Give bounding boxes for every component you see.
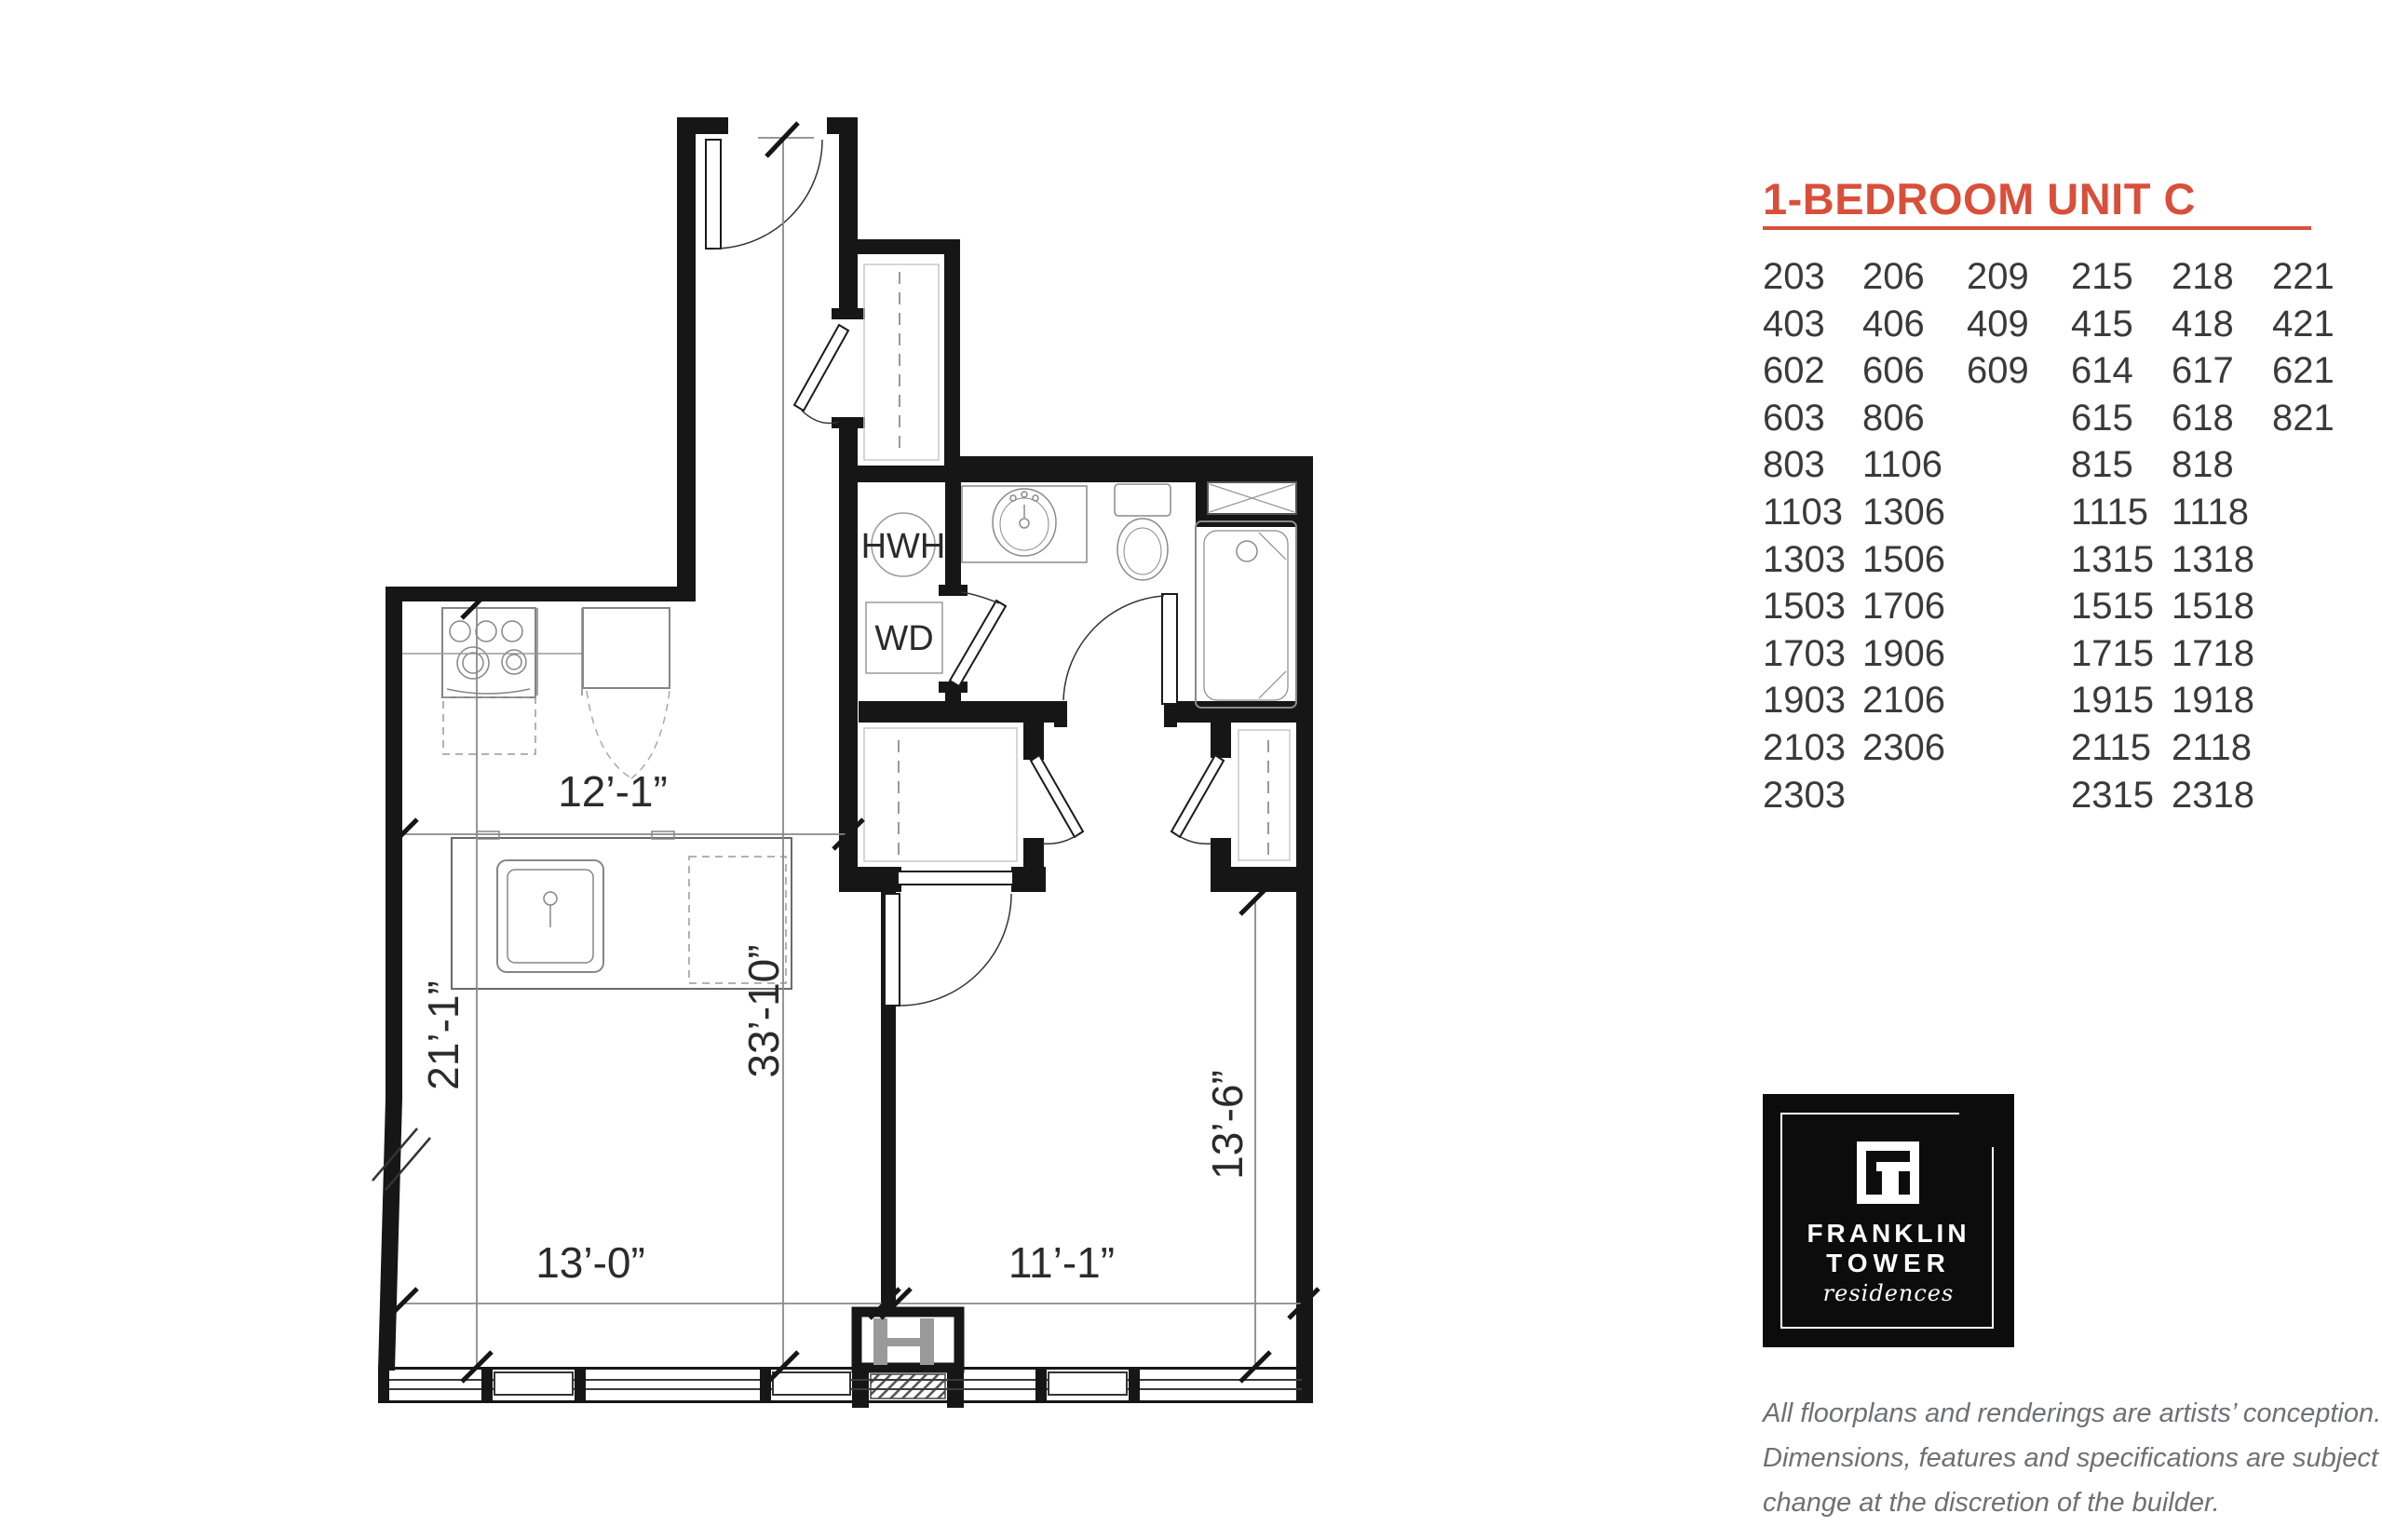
unit-number [1862,772,1967,819]
unit-number: 603 [1763,395,1862,442]
unit-number [1967,536,2071,584]
unit-number: 1503 [1763,583,1862,630]
unit-grid: 2032062092152182214034064094154184216026… [1763,253,2365,818]
unit-number: 403 [1763,301,1862,348]
dim-bedroom-width: 11’-1” [1008,1238,1115,1287]
dim-living-width: 13’-0” [535,1238,645,1287]
unit-number [2272,489,2365,536]
logo-tower: TOWER [1763,1249,2014,1278]
unit-number: 606 [1862,347,1967,395]
unit-number [1967,724,2071,772]
unit-number: 203 [1763,253,1862,301]
unit-number: 2318 [2172,772,2272,819]
column-detail [852,1312,964,1408]
unit-number: 215 [2071,253,2172,301]
dim-kitchen-width: 12’-1” [558,767,668,816]
unit-number: 617 [2172,347,2272,395]
unit-number [1967,677,2071,724]
logo-residences: residences [1763,1280,2014,1306]
unit-number: 1103 [1763,489,1862,536]
utility-door-leaf [950,601,1006,686]
unit-number: 1106 [1862,441,1967,489]
walls [378,117,1313,1402]
unit-number: 1903 [1763,677,1862,724]
unit-number [2272,583,2365,630]
unit-number: 1518 [2172,583,2272,630]
disclaimer-line: Dimensions, features and specifications … [1763,1436,2382,1480]
unit-number: 1703 [1763,630,1862,678]
unit-number [2272,724,2365,772]
unit-number [1967,772,2071,819]
label-wd: WD [874,619,933,658]
unit-number: 1115 [2071,489,2172,536]
unit-number [2272,772,2365,819]
unit-number: 1718 [2172,630,2272,678]
entry-closet-door-leaf [794,325,848,411]
sink [993,489,1056,556]
unit-number: 614 [2071,347,2172,395]
unit-number: 818 [2172,441,2272,489]
unit-number: 1315 [2071,536,2172,584]
disclaimer-line: change at the discretion of the builder. [1763,1480,2382,1525]
unit-number: 1918 [2172,677,2272,724]
floorplan-sheet: 12’-1” 13’-0” 11’-1” 21’-1” 33’-10” 13’-… [0,0,2382,1540]
unit-number: 806 [1862,395,1967,442]
dim-bedroom-depth: 13’-6” [1203,1070,1252,1180]
unit-number [2272,441,2365,489]
unit-number: 1515 [2071,583,2172,630]
unit-number: 1906 [1862,630,1967,678]
logo-franklin: FRANKLIN [1763,1219,2014,1249]
unit-number: 1706 [1862,583,1967,630]
unit-number: 2315 [2071,772,2172,819]
unit-number: 1506 [1862,536,1967,584]
bedroom-door-leaf [885,894,900,1006]
unit-number: 409 [1967,301,2071,348]
unit-number: 602 [1763,347,1862,395]
unit-number: 803 [1763,441,1862,489]
disclaimer: All floorplans and renderings are artist… [1763,1391,2382,1525]
closet-door-leaf [1031,755,1083,837]
unit-number: 209 [1967,253,2071,301]
unit-number [1967,583,2071,630]
unit-number [1967,441,2071,489]
unit-number [1967,489,2071,536]
unit-number: 815 [2071,441,2172,489]
ft-monogram-icon [1857,1141,1919,1204]
unit-number: 1303 [1763,536,1862,584]
unit-number [2272,630,2365,678]
entry-door-leaf [706,140,721,249]
toilet-tank [1115,484,1171,516]
unit-number: 218 [2172,253,2272,301]
unit-number: 415 [2071,301,2172,348]
unit-number: 2118 [2172,724,2272,772]
unit-number: 2303 [1763,772,1862,819]
bathtub [1196,521,1296,708]
unit-number: 1306 [1862,489,1967,536]
unit-number: 1715 [2071,630,2172,678]
bedroom-door-opening [898,871,1013,885]
unit-number: 418 [2172,301,2272,348]
unit-number: 406 [1862,301,1967,348]
hatch-strip [871,1374,945,1398]
unit-number: 1915 [2071,677,2172,724]
page-title: 1-BEDROOM UNIT C [1763,173,2196,224]
unit-number: 1118 [2172,489,2272,536]
unit-number: 221 [2272,253,2365,301]
dishwasher [583,608,670,688]
dim-overall-depth: 33’-10” [739,944,788,1077]
unit-number [1967,395,2071,442]
disclaimer-line: All floorplans and renderings are artist… [1763,1391,2382,1436]
unit-number: 821 [2272,395,2365,442]
unit-number: 609 [1967,347,2071,395]
unit-number: 615 [2071,395,2172,442]
closet-door-leaf [1171,755,1224,837]
unit-number: 421 [2272,301,2365,348]
unit-number: 2306 [1862,724,1967,772]
unit-number [2272,677,2365,724]
unit-number: 2115 [2071,724,2172,772]
unit-number: 2103 [1763,724,1862,772]
window-band [378,1367,1313,1403]
unit-number [1967,630,2071,678]
title-underline [1763,226,2311,230]
unit-number: 621 [2272,347,2365,395]
unit-number: 1318 [2172,536,2272,584]
unit-number [2272,536,2365,584]
dim-living-depth: 21’-1” [419,980,467,1090]
unit-number: 206 [1862,253,1967,301]
wall-break-marks [372,1128,430,1190]
unit-number: 618 [2172,395,2272,442]
label-hwh: HWH [861,527,946,566]
unit-number: 2106 [1862,677,1967,724]
plan-labels: 12’-1” 13’-0” 11’-1” 21’-1” 33’-10” 13’-… [419,527,1252,1287]
bathroom-door-leaf [1162,594,1177,704]
franklin-tower-logo: FRANKLIN TOWER residences [1763,1094,2014,1347]
